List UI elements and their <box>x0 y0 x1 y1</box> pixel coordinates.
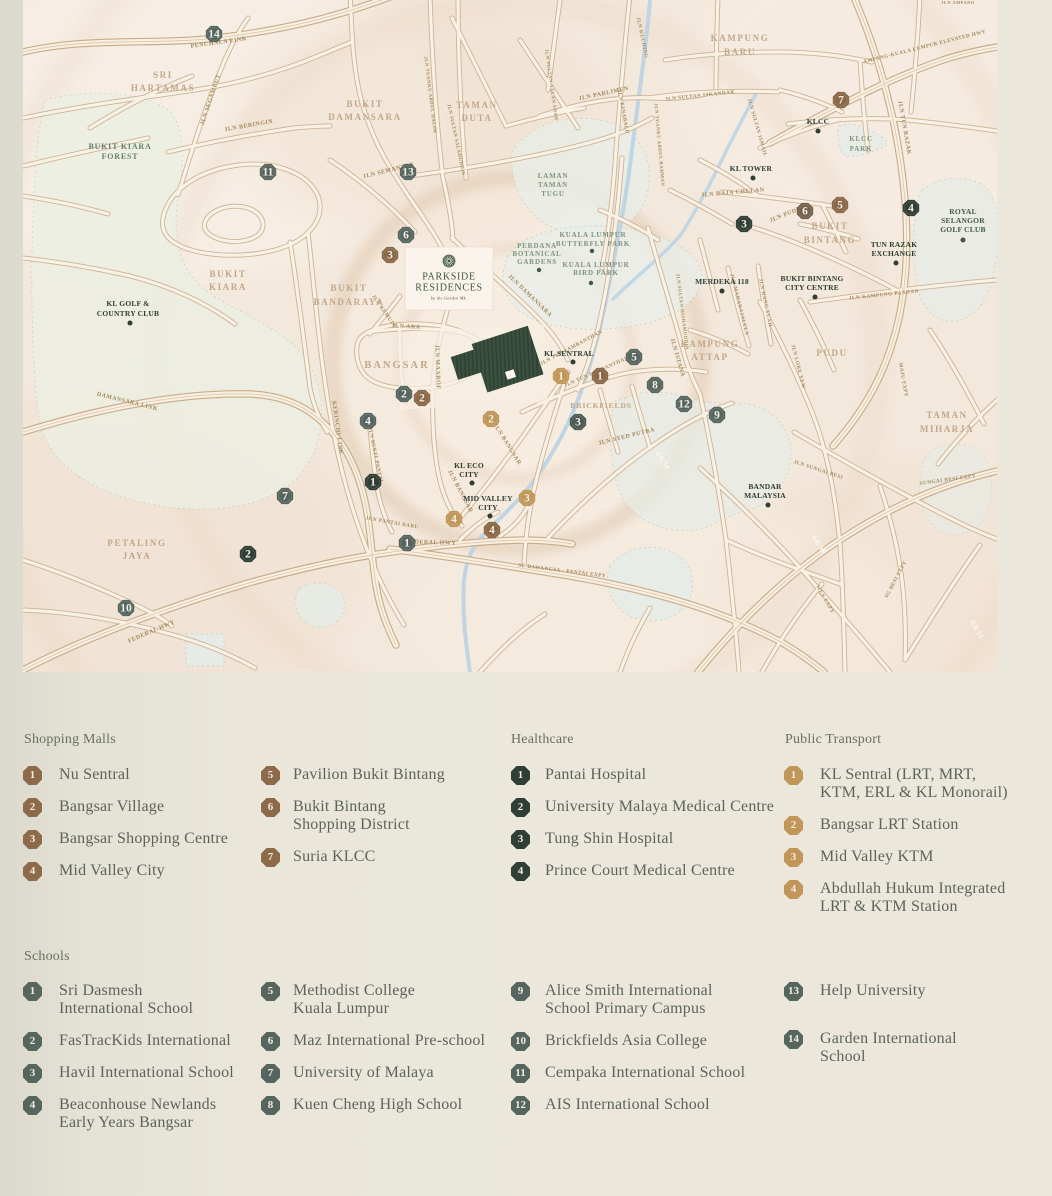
svg-text:KLCC: KLCC <box>849 135 872 143</box>
svg-text:JAYA: JAYA <box>123 551 152 561</box>
svg-text:LAMAN: LAMAN <box>538 172 568 180</box>
svg-text:8: 8 <box>652 380 658 392</box>
svg-text:BUKIT: BUKIT <box>330 283 367 293</box>
svg-text:CITY: CITY <box>478 503 498 512</box>
svg-text:10: 10 <box>120 603 132 615</box>
svg-text:KAMPUNG: KAMPUNG <box>681 339 740 349</box>
svg-text:1: 1 <box>370 477 376 489</box>
svg-text:BIRD PARK: BIRD PARK <box>573 269 619 277</box>
svg-text:TAMAN: TAMAN <box>456 100 497 110</box>
svg-text:3: 3 <box>387 250 393 262</box>
svg-text:CITY CENTRE: CITY CENTRE <box>785 283 839 292</box>
svg-text:14: 14 <box>208 29 220 41</box>
svg-text:11: 11 <box>263 167 274 179</box>
svg-text:KL GOLF &: KL GOLF & <box>106 299 149 308</box>
svg-text:KUALA LUMPUR: KUALA LUMPUR <box>563 261 630 269</box>
svg-text:GOLF CLUB: GOLF CLUB <box>940 225 986 234</box>
svg-text:BUKIT: BUKIT <box>346 99 383 109</box>
svg-text:BUKIT: BUKIT <box>811 221 848 231</box>
svg-text:TAMAN: TAMAN <box>538 181 568 189</box>
svg-text:4: 4 <box>451 514 457 526</box>
svg-text:JLN AMPANG: JLN AMPANG <box>941 0 975 5</box>
svg-text:EXCHANGE: EXCHANGE <box>872 249 917 258</box>
svg-text:2: 2 <box>419 393 425 405</box>
svg-text:CITY: CITY <box>459 470 479 479</box>
svg-text:KUALA LUMPUR: KUALA LUMPUR <box>560 231 627 239</box>
svg-text:PARK: PARK <box>850 145 873 153</box>
svg-text:TAMAN: TAMAN <box>926 410 967 420</box>
svg-text:BUKIT BINTANG: BUKIT BINTANG <box>781 274 844 283</box>
svg-text:BANDAR: BANDAR <box>748 482 782 491</box>
svg-text:2: 2 <box>245 549 251 561</box>
svg-text:BUTTERFLY PARK: BUTTERFLY PARK <box>556 240 630 248</box>
svg-text:COUNTRY CLUB: COUNTRY CLUB <box>97 309 160 318</box>
svg-text:MERDEKA 118: MERDEKA 118 <box>695 277 749 286</box>
svg-text:BANDARAYA: BANDARAYA <box>314 297 385 307</box>
svg-text:MID VALLEY: MID VALLEY <box>463 494 513 503</box>
svg-text:BOTANICAL: BOTANICAL <box>512 250 561 258</box>
svg-text:PETALING: PETALING <box>107 538 166 548</box>
svg-text:KL SENTRAL: KL SENTRAL <box>544 349 594 358</box>
svg-text:TUN RAZAK: TUN RAZAK <box>871 240 918 249</box>
svg-text:ROYAL: ROYAL <box>949 207 976 216</box>
svg-text:MIHARJA: MIHARJA <box>920 424 974 434</box>
svg-text:1: 1 <box>404 538 410 550</box>
svg-text:1: 1 <box>558 371 564 383</box>
svg-text:BUKIT KIARA: BUKIT KIARA <box>88 142 151 151</box>
svg-text:KL ECO: KL ECO <box>454 461 484 470</box>
svg-text:4: 4 <box>908 203 914 215</box>
svg-text:BANGSAR: BANGSAR <box>364 360 429 371</box>
svg-text:by the Garden Mk.: by the Garden Mk. <box>431 296 467 301</box>
svg-text:13: 13 <box>402 167 414 179</box>
svg-text:BUKIT: BUKIT <box>209 269 246 279</box>
svg-text:4: 4 <box>489 525 495 537</box>
svg-text:9: 9 <box>714 410 720 422</box>
svg-text:TUGU: TUGU <box>541 190 564 198</box>
svg-text:4: 4 <box>365 416 371 428</box>
svg-text:BARU: BARU <box>724 47 756 57</box>
svg-text:SELANGOR: SELANGOR <box>941 216 985 225</box>
svg-text:3: 3 <box>524 493 530 505</box>
svg-text:ATTAP: ATTAP <box>691 352 728 362</box>
svg-text:12: 12 <box>678 399 690 411</box>
svg-text:3: 3 <box>575 417 581 429</box>
svg-text:6: 6 <box>802 206 808 218</box>
svg-text:HARTAMAS: HARTAMAS <box>131 83 195 93</box>
svg-text:5: 5 <box>837 200 843 212</box>
svg-text:KAMPUNG: KAMPUNG <box>711 33 770 43</box>
svg-text:BRICKFIELDS: BRICKFIELDS <box>570 401 631 410</box>
svg-text:MALAYSIA: MALAYSIA <box>744 491 786 500</box>
svg-text:BINTANG: BINTANG <box>804 235 857 245</box>
svg-text:2: 2 <box>401 389 407 401</box>
svg-text:KLCC: KLCC <box>807 117 829 126</box>
svg-text:PARKSIDE: PARKSIDE <box>422 272 476 283</box>
svg-text:SRI: SRI <box>153 70 173 80</box>
svg-text:DUTA: DUTA <box>461 113 492 123</box>
svg-text:KIARA: KIARA <box>209 282 247 292</box>
svg-text:GARDENS: GARDENS <box>517 258 557 266</box>
svg-text:7: 7 <box>838 95 844 107</box>
svg-text:6: 6 <box>403 230 409 242</box>
svg-text:RESIDENCES: RESIDENCES <box>415 283 483 294</box>
svg-text:7: 7 <box>282 491 288 503</box>
svg-text:2: 2 <box>488 414 494 426</box>
svg-text:KL TOWER: KL TOWER <box>730 164 773 173</box>
svg-text:3: 3 <box>741 219 747 231</box>
svg-text:1: 1 <box>597 371 603 383</box>
svg-text:PERDANA: PERDANA <box>517 242 557 250</box>
svg-text:5: 5 <box>631 352 637 364</box>
svg-text:FOREST: FOREST <box>102 152 139 161</box>
svg-text:DAMANSARA: DAMANSARA <box>328 112 401 122</box>
svg-text:PUDU: PUDU <box>816 348 847 358</box>
